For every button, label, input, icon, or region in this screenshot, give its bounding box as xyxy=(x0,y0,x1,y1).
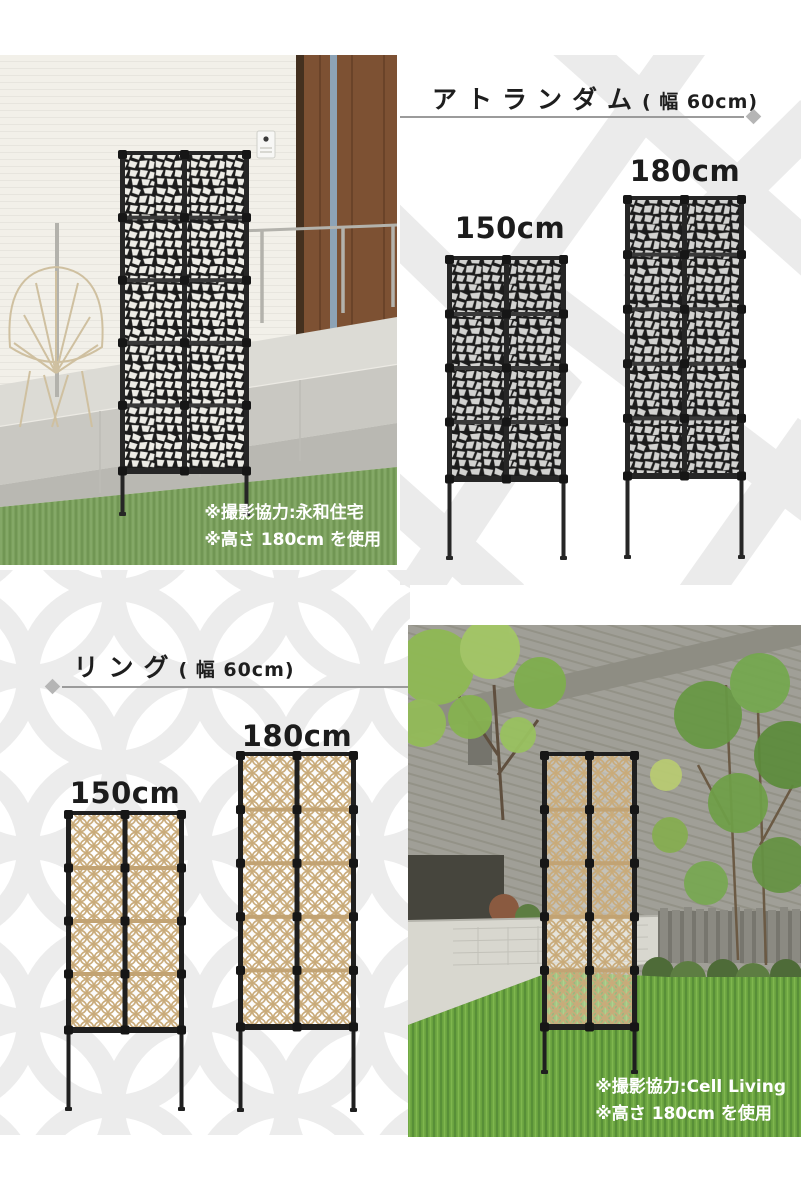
section-title-ring-text: リング xyxy=(73,653,178,682)
garden-fence xyxy=(658,907,801,963)
section-title-atrandom: アトランダム( 幅 60cm) xyxy=(400,80,790,116)
diagram-screen-ring-180 xyxy=(238,752,356,1112)
screen-in-photo-ring xyxy=(542,752,637,1074)
caption-credit: ※撮影協力:永和住宅 xyxy=(204,500,381,528)
doorbell-intercom xyxy=(257,131,275,158)
screen-in-photo-atrandom xyxy=(120,151,249,516)
size-label-atrandom-180: 180cm xyxy=(626,154,744,188)
section-title-atrandom-width-note: ( 幅 60cm) xyxy=(642,91,758,113)
section-divider-ring xyxy=(62,686,408,688)
section-title-atrandom-text: アトランダム xyxy=(432,85,642,114)
building-entrance xyxy=(408,855,504,925)
diagram-screen-atrandom-150 xyxy=(447,256,566,560)
section-title-ring-width-note: ( 幅 60cm) xyxy=(178,659,294,681)
wooden-door xyxy=(296,55,397,347)
diagram-screen-ring-150 xyxy=(66,811,184,1111)
diagram-screen-atrandom-180 xyxy=(625,196,744,559)
product-info-image: アトランダム( 幅 60cm) xyxy=(0,0,801,1200)
size-label-ring-180: 180cm xyxy=(238,719,356,753)
photo-caption-ring: ※撮影協力:Cell Living ※高さ 180cm を使用 xyxy=(595,1074,786,1129)
caption-height-note: ※高さ 180cm を使用 xyxy=(204,527,381,555)
photo-caption-atrandom: ※撮影協力:永和住宅 ※高さ 180cm を使用 xyxy=(204,500,381,555)
size-label-atrandom-150: 150cm xyxy=(451,211,569,245)
caption-height-note: ※高さ 180cm を使用 xyxy=(595,1101,786,1129)
photo-ring-scene: ※撮影協力:Cell Living ※高さ 180cm を使用 xyxy=(408,625,801,1137)
section-title-ring: リング( 幅 60cm) xyxy=(0,648,368,684)
section-divider-atrandom xyxy=(400,116,744,118)
caption-credit: ※撮影協力:Cell Living xyxy=(595,1074,786,1102)
size-label-ring-150: 150cm xyxy=(66,776,184,810)
photo-atrandom-scene: ※撮影協力:永和住宅 ※高さ 180cm を使用 xyxy=(0,55,397,565)
